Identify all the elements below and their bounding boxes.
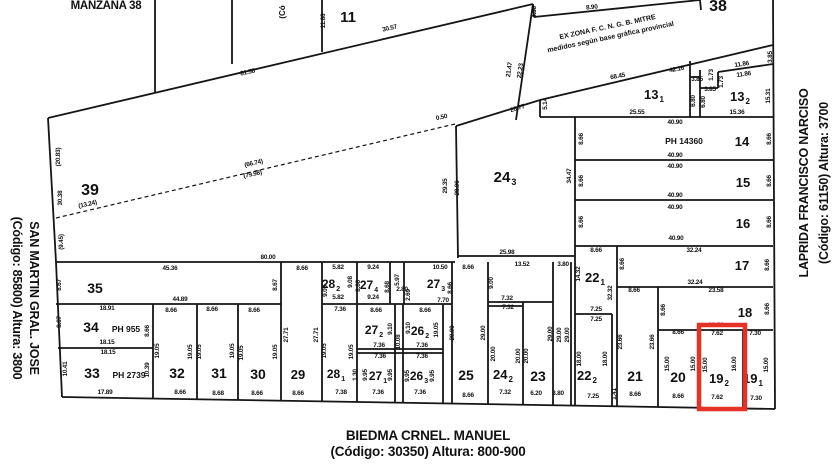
measurement-label: 32.32 — [607, 285, 614, 301]
measurement-label: 19.05 — [196, 344, 203, 360]
parcel-label-31: 31 — [211, 365, 227, 381]
ph-label: PH 2739 — [112, 370, 145, 380]
measurement-label: 29.00 — [564, 327, 571, 343]
measurement-label: 19.05 — [272, 344, 279, 360]
measurement-label: 8.66 — [578, 133, 585, 145]
measurement-label: 17.89 — [98, 389, 114, 396]
measurement-label: 15.00 — [763, 357, 770, 373]
parcel-label-38: 38 — [709, 0, 727, 15]
parcel-label-15: 15 — [736, 175, 750, 190]
measurement-label: 8.66 — [766, 175, 773, 187]
street-label-right-code: (Código: 61150) Altura: 3700 — [817, 102, 831, 264]
measurement-label: (20.83) — [55, 148, 62, 167]
measurement-label: 7.32 — [501, 295, 513, 302]
parcel-label-22-1: 221 — [585, 270, 605, 287]
measurement-label: 9.10 — [387, 323, 394, 335]
measurement-label: 81.58 — [240, 67, 257, 77]
parcel-label-28-1: 281 — [327, 367, 345, 383]
measurement-label: 15.00 — [690, 356, 697, 372]
measurement-label: 8.66 — [628, 287, 640, 294]
parcel-label-27-1: 271 — [369, 369, 387, 385]
measurement-label: 8.68 — [384, 281, 391, 293]
measurement-label: 9.08 — [347, 276, 354, 288]
measurement-label: 27.71 — [283, 327, 290, 343]
measurement-label: 8.66 — [578, 175, 585, 187]
street-label-left-name: SAN MARTIN GRAL. JOSE — [27, 221, 41, 374]
parcel-label-27-4: 274 — [360, 278, 378, 294]
measurement-label: 40.90 — [669, 235, 685, 242]
measurement-label: 10.08 — [395, 334, 402, 350]
street-label-right-name: LAPRIDA FRANCISCO NARCISO — [797, 88, 811, 277]
cadastral-map-page: 11.8830.5781.584.388.9021.4722.2326.770.… — [0, 0, 835, 467]
measurement-label: 3.80 — [557, 261, 569, 268]
measurement-label: 7.25 — [587, 393, 599, 400]
parcel-label-13-2: 132 — [730, 89, 750, 106]
ph-label: PH 14360 — [665, 136, 703, 146]
parcel-label-35: 35 — [87, 280, 103, 296]
measurement-label: 8.66 — [766, 133, 773, 145]
measurement-label: 18.15 — [101, 349, 117, 356]
measurement-label: 7.36 — [414, 389, 426, 396]
parcel-label-25: 25 — [458, 367, 474, 383]
measurement-label: 7.36 — [374, 353, 386, 360]
parcel-label-29: 29 — [291, 367, 305, 382]
parcel-boundary-line — [456, 100, 540, 126]
measurement-label: 32.24 — [687, 247, 703, 254]
measurement-label: (9.45) — [58, 234, 65, 250]
measurement-label: 11.86 — [736, 70, 752, 79]
measurement-label: 13.52 — [515, 261, 531, 268]
parcel-label-16: 16 — [736, 216, 750, 231]
parcel-boundary-line — [62, 397, 775, 409]
measurement-label: 3.80 — [552, 390, 564, 397]
measurement-label: 1.30 — [352, 369, 359, 381]
measurement-label: 25.98 — [500, 249, 516, 256]
measurement-label: 8.66 — [672, 393, 684, 400]
measurement-label: 40.90 — [668, 204, 684, 211]
measurement-label: 15.31 — [765, 88, 772, 104]
measurement-label: 29.00 — [480, 325, 487, 341]
measurement-label: 29.35 — [442, 178, 449, 194]
parcel-boundary-line — [48, 118, 56, 262]
measurement-label: 20.00 — [515, 348, 522, 364]
measurement-label: 8.90 — [586, 3, 599, 11]
parcel-label-26-2: 262 — [411, 324, 429, 340]
parcel-label-26-3: 263 — [410, 369, 428, 385]
measurement-label: 7.36 — [416, 353, 428, 360]
measurement-label: 7.70 — [437, 297, 449, 304]
measurement-label: 18.15 — [100, 339, 116, 346]
measurement-label: 8.66 — [144, 325, 151, 337]
measurement-label: 5.82 — [332, 294, 344, 301]
measurement-label: 8.66 — [619, 258, 626, 270]
measurement-label: 42.16 — [669, 65, 686, 75]
measurement-label: 3.85 — [767, 51, 774, 63]
measurement-label: 40.90 — [668, 152, 684, 159]
measurement-label: 3.85 — [691, 76, 703, 83]
measurement-label: 8.66 — [419, 307, 431, 314]
parcel-label-32: 32 — [169, 365, 185, 381]
measurement-label: (66.74) — [244, 158, 264, 169]
measurement-label: 6.80 — [690, 95, 697, 107]
measurement-label: 8.66 — [672, 329, 684, 336]
measurement-label: 8.68 — [212, 390, 224, 397]
measurement-label: 8.66 — [292, 390, 304, 397]
measurement-label: 14.32 — [575, 266, 582, 282]
measurement-label: 8.66 — [590, 247, 602, 254]
measurement-label: (79.98) — [243, 169, 263, 180]
measurement-label: 9.24 — [367, 294, 379, 301]
measurement-label: 6.20 — [530, 390, 542, 397]
parcel-boundary-line — [700, 0, 701, 10]
measurement-label: 40.90 — [668, 119, 684, 126]
measurement-label: 8.66 — [462, 264, 474, 271]
measurement-label: 5.97 — [394, 274, 401, 286]
measurement-label: 29.00 — [449, 325, 456, 341]
measurement-label: 29.00 — [556, 327, 563, 343]
measurement-label: 8.66 — [629, 391, 641, 398]
parcel-label-18: 18 — [738, 305, 752, 320]
measurement-label: 1.73 — [708, 69, 715, 81]
parcel-label-27-3: 273 — [427, 277, 445, 293]
measurement-label: 8.66 — [206, 306, 218, 313]
measurement-label: 7.62 — [711, 394, 723, 401]
parcel-label-39: 39 — [81, 182, 99, 199]
measurement-label: 10.50 — [433, 264, 449, 271]
measurement-label: 9.95 — [387, 369, 394, 381]
measurement-label: 8.66 — [764, 303, 771, 315]
measurement-label: 7.36 — [372, 389, 384, 396]
measurement-label: 7.36 — [334, 306, 346, 313]
measurement-label: 19.05 — [433, 322, 440, 338]
measurement-label: 10.41 — [62, 361, 69, 377]
measurement-label: 2.69 — [405, 289, 412, 301]
measurement-label: 7.30 — [750, 395, 762, 402]
measurement-label: 3.85 — [704, 86, 716, 93]
measurement-label: 9.24 — [367, 264, 379, 271]
measurement-label: 16.00 — [731, 356, 738, 372]
measurement-label: 19.05 — [321, 343, 328, 359]
measurement-label: 8.67 — [56, 316, 63, 328]
measurement-label: 8.66 — [174, 389, 186, 396]
measurement-label: 18.00 — [602, 351, 609, 367]
measurement-label: 19.05 — [229, 343, 236, 359]
measurement-label: 23.66 — [649, 334, 656, 350]
measurement-label: 5.82 — [332, 264, 344, 271]
measurement-label: 8.66 — [462, 392, 474, 399]
measurement-label: 8.66 — [766, 216, 773, 228]
parcel-label-22-2: 222 — [577, 368, 597, 385]
parcel-boundary-line — [48, 4, 533, 118]
measurement-label: 8.66 — [370, 307, 382, 314]
measurement-label: 8.67 — [272, 279, 279, 291]
parcel-label-33: 33 — [84, 365, 100, 381]
measurement-label: 8.66 — [296, 265, 308, 272]
street-label-bottom-name: BIEDMA CRNEL. MANUEL — [346, 428, 510, 443]
measurement-label: 28.06 — [454, 180, 461, 196]
measurement-label: 15.00 — [702, 357, 709, 373]
parcel-label-21: 21 — [627, 368, 643, 384]
measurement-label: 21.47 — [505, 61, 514, 77]
measurement-label: 23.58 — [709, 287, 725, 294]
measurement-label: 29.00 — [547, 326, 554, 342]
street-label-bottom-code: (Código: 30350) Altura: 800-900 — [330, 444, 525, 459]
measurement-label: 20.00 — [490, 346, 497, 362]
measurement-label: 7.30 — [749, 330, 761, 337]
parcel-label-13-1: 131 — [644, 87, 664, 104]
parcel-label-24-3: 243 — [494, 169, 517, 187]
measurement-label: 19.05 — [348, 344, 355, 360]
measurement-label: 45.36 — [163, 265, 179, 272]
measurement-label: 19.05 — [238, 345, 245, 361]
measurement-label: 8.66 — [578, 216, 585, 228]
measurement-label: 32.24 — [688, 279, 704, 286]
measurement-label: 7.25 — [590, 316, 602, 323]
measurement-label: 27.71 — [313, 327, 320, 343]
measurement-label: 8.66 — [251, 390, 263, 397]
parcel-map-canvas: 11.8830.5781.584.388.9021.4722.2326.770.… — [0, 0, 835, 467]
parcel-label-20: 20 — [670, 369, 686, 385]
ph-label: PH 955 — [112, 324, 141, 334]
measurement-label: 8.66 — [165, 307, 177, 314]
measurement-label: 0.50 — [435, 113, 449, 123]
parcel-label-17: 17 — [735, 258, 749, 273]
measurement-label: 18.00 — [576, 351, 583, 367]
adjacent-block-title: MANZANA 38 — [71, 0, 143, 12]
measurement-label: 22.23 — [516, 62, 525, 78]
measurement-label: 8.67 — [56, 279, 63, 291]
measurement-label: 25.55 — [630, 109, 646, 116]
measurement-label: 40.90 — [668, 163, 684, 170]
measurement-label: 1.41 — [611, 388, 618, 400]
measurement-label: 7.32 — [502, 304, 514, 311]
measurement-label: 23.66 — [617, 334, 624, 350]
parcel-label-28-2: 282 — [322, 277, 340, 293]
measurement-label: 6.80 — [700, 96, 707, 108]
measurement-label: 19.05 — [154, 343, 161, 359]
measurement-label: 30.57 — [382, 23, 399, 33]
top-street-code-fragment: (Có — [278, 5, 287, 18]
measurement-label: 44.89 — [173, 296, 189, 303]
parcel-label-11: 11 — [340, 9, 356, 26]
measurement-label: 7.62 — [711, 330, 723, 337]
parcel-label-30: 30 — [250, 366, 266, 382]
measurement-label: 20.00 — [523, 348, 530, 364]
parcel-label-24-2: 242 — [493, 367, 513, 384]
measurement-label: 34.47 — [566, 168, 573, 184]
measurement-label: 11.88 — [320, 13, 327, 28]
measurement-label: 8.66 — [660, 304, 667, 316]
measurement-label: 18.91 — [100, 305, 116, 312]
measurement-label: 19.05 — [187, 344, 194, 360]
measurement-label: 1.73 — [718, 76, 725, 88]
parcel-label-23: 23 — [530, 368, 546, 384]
measurement-label: (13.24) — [78, 199, 98, 210]
measurement-label: 4.38 — [531, 6, 538, 18]
street-label-left-code: (Código: 85800) Altura: 3800 — [10, 217, 24, 380]
measurement-label: 5.14 — [542, 98, 549, 110]
parcel-label-19-2: 192 — [709, 371, 729, 388]
measurement-label: 8.66 — [248, 307, 260, 314]
measurement-label: 9.00 — [488, 277, 495, 289]
measurement-label: 30.38 — [57, 190, 64, 206]
measurement-label: 9.95 — [429, 370, 436, 382]
measurement-label: 8.66 — [447, 282, 454, 294]
parcel-label-14: 14 — [735, 134, 750, 149]
measurement-label: 7.32 — [499, 389, 511, 396]
measurement-label: 80.00 — [261, 254, 277, 261]
measurement-label: 8.66 — [764, 259, 771, 271]
measurement-label: 40.90 — [668, 192, 684, 199]
measurement-label: 7.36 — [416, 342, 428, 349]
parcel-label-34: 34 — [83, 319, 99, 335]
parcel-boundary-line — [534, 0, 700, 17]
measurement-label: 7.36 — [373, 342, 385, 349]
measurement-label: 7.25 — [590, 306, 602, 313]
parcel-label-27-2: 272 — [365, 323, 383, 339]
measurement-label: 15.36 — [730, 109, 746, 116]
measurement-label: 7.38 — [335, 389, 347, 396]
